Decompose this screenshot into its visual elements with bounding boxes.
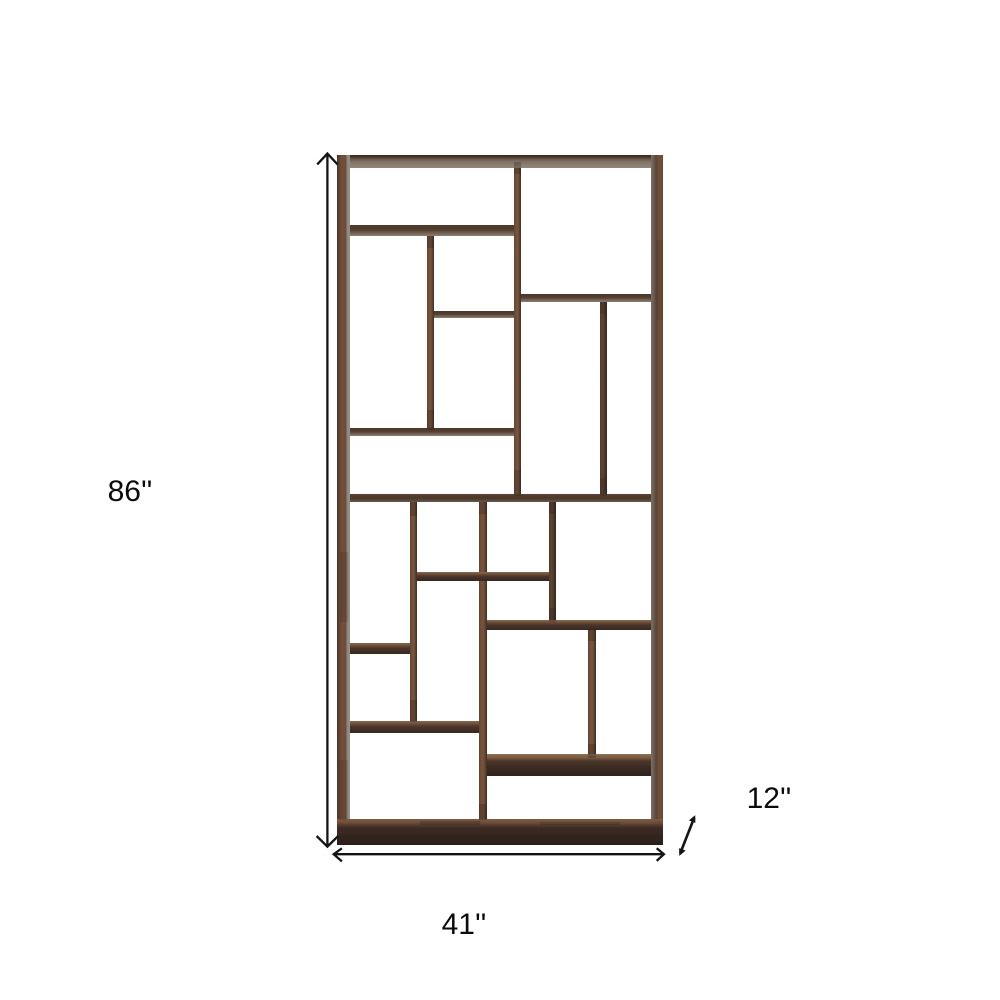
svg-text:12'': 12'' — [747, 782, 792, 815]
svg-text:41'': 41'' — [442, 908, 487, 941]
svg-text:86'': 86'' — [108, 475, 153, 508]
